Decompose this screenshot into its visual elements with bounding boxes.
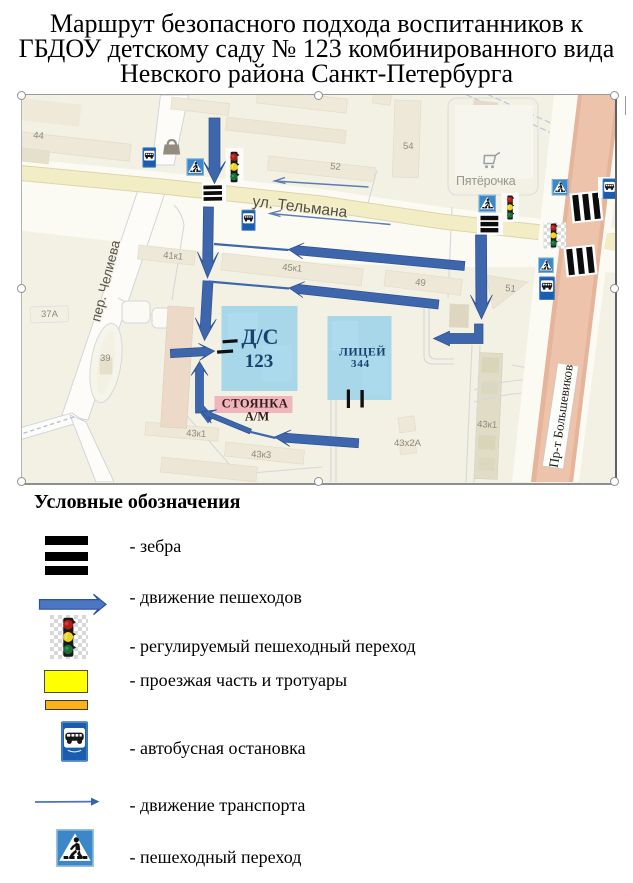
svg-text:А/М: А/М [245,410,270,424]
svg-text:43к3: 43к3 [251,449,272,461]
svg-text:Пятёрочка: Пятёрочка [456,174,516,188]
svg-text:123: 123 [245,351,274,372]
svg-text:37А: 37А [41,309,59,320]
svg-text:45к1: 45к1 [282,262,303,275]
svg-text:ЛИЦЕЙ: ЛИЦЕЙ [339,345,386,359]
svg-text:41к1: 41к1 [163,250,184,263]
svg-text:52: 52 [330,161,341,173]
svg-text:51: 51 [505,283,516,295]
svg-text:43к1: 43к1 [186,428,207,440]
svg-text:49: 49 [415,277,426,289]
svg-text:344: 344 [351,358,370,370]
svg-text:54: 54 [403,141,414,152]
svg-text:44: 44 [33,130,44,142]
svg-text:43к1: 43к1 [477,419,498,431]
svg-text:43х2А: 43х2А [394,438,422,449]
svg-text:39: 39 [100,353,111,364]
svg-text:Д/С: Д/С [241,324,278,349]
svg-text:СТОЯНКА: СТОЯНКА [222,397,289,411]
